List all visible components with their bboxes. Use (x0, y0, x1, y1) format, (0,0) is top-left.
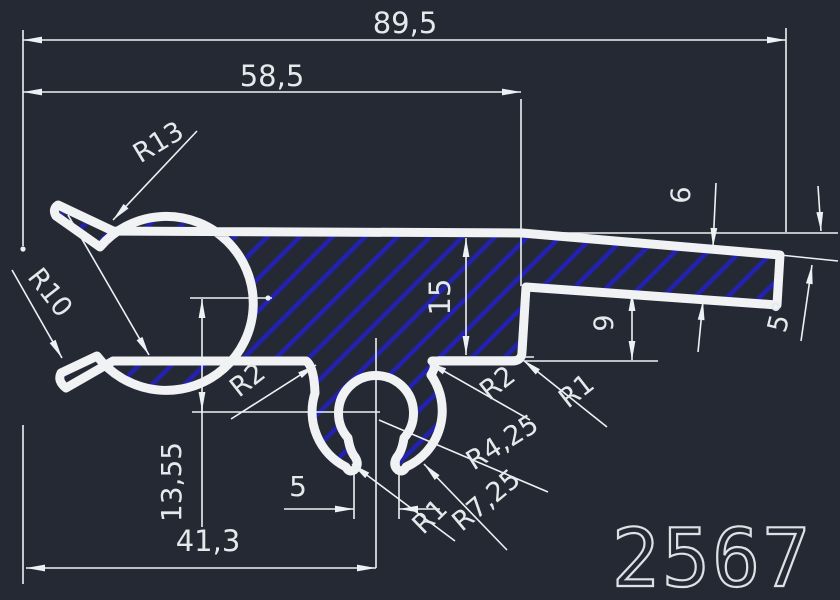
dim-line-angle-top (818, 186, 821, 231)
dim-arm-angle: 5° (762, 298, 800, 335)
drawing-viewport: 89,5 58,5 15 6 9 5° 13,55 41,3 5 R13 R10… (0, 0, 840, 600)
radius-claw-inner: R10 (21, 262, 78, 323)
radius-lip-outer: R13 (128, 116, 190, 170)
dim-line-angle-bottom (801, 265, 812, 341)
radius-hook-tip: R1 (406, 493, 453, 540)
angle-ref-sloped (780, 255, 838, 261)
radius-right-root: R2 (474, 360, 521, 407)
dim-arm-offset: 9 (589, 314, 620, 331)
dim-arm-thickness: 6 (666, 186, 697, 203)
dim-body-height: 15 (423, 279, 457, 316)
cad-canvas[interactable]: 89,5 58,5 15 6 9 5° 13,55 41,3 5 R13 R10… (0, 0, 840, 600)
dim-clip-distance: 41,3 (176, 524, 241, 558)
dim-upper-width: 58,5 (240, 59, 305, 93)
dim-overall-width: 89,5 (373, 6, 438, 40)
dim-line-6-top (713, 183, 716, 247)
dim-line-6-bottom (698, 301, 703, 352)
datum-dot-left (20, 246, 25, 251)
datum-dot-arc-center (265, 295, 270, 300)
profile-section (54, 205, 780, 471)
radius-step-corner: R1 (553, 368, 600, 415)
dim-clip-opening: 5 (289, 470, 307, 503)
part-number: 2567 (612, 512, 813, 600)
dim-clip-depth: 13,55 (155, 442, 188, 522)
